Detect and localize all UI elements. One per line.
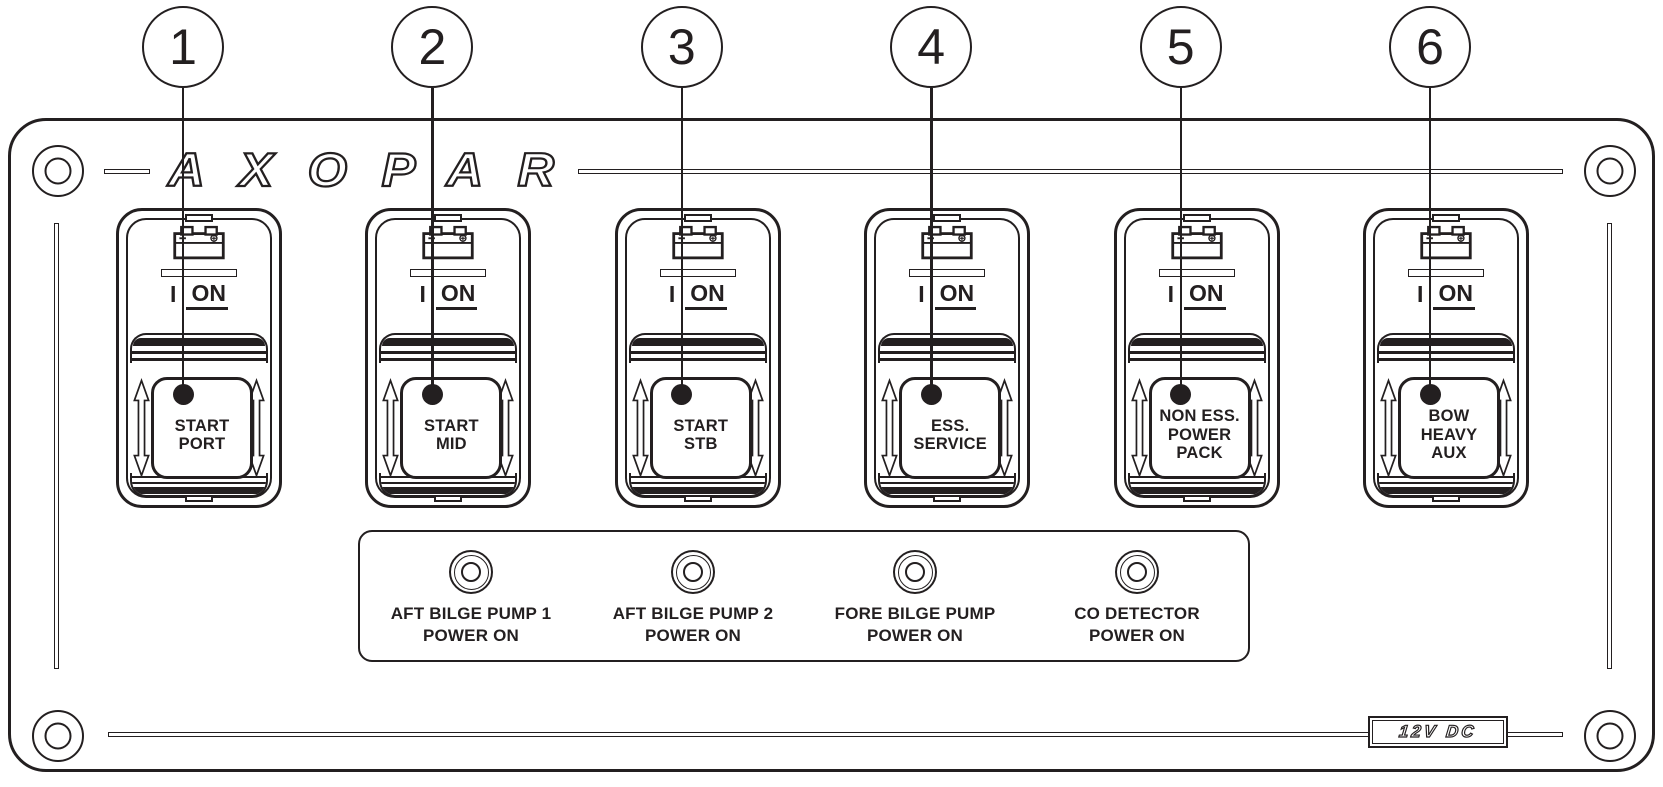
up-down-arrow-icon [631,377,650,479]
indicator-light-label: FORE BILGE PUMP POWER ON [835,603,996,647]
callout-dot [1170,384,1191,405]
led-indicator-icon [671,550,715,594]
indicator-light-panel: AFT BILGE PUMP 1 POWER ON AFT BILGE PUMP… [358,530,1250,662]
position-indicator: I [1417,281,1423,310]
switch-label: NON ESS. POWER PACK [1149,377,1251,479]
callout-leader-line [681,88,683,395]
switch-window [909,269,985,277]
switch-label: START PORT [151,377,253,479]
bezel-tab [434,214,462,222]
bezel-tab [1183,214,1211,222]
up-down-arrow-icon [1379,377,1398,479]
rocker-top-stripes [130,333,268,363]
callout-leader-line [1429,88,1431,395]
on-label: ON [935,281,977,310]
battery-icon [1169,223,1225,261]
led-indicator-icon [1115,550,1159,594]
switch-window [1159,269,1235,277]
callout-number: 5 [1140,6,1222,88]
indicator-light-label: CO DETECTOR POWER ON [1074,603,1200,647]
callout-number: 4 [890,6,972,88]
position-indicator: I [170,281,176,310]
voltage-badge-label: 12V DC [1398,722,1478,742]
on-label: ON [685,281,727,310]
switch-window [1408,269,1484,277]
up-down-arrow-icon [132,377,151,479]
callout-leader-line [431,88,433,395]
battery-icon [1418,223,1474,261]
on-position-label: I ON [1117,281,1277,310]
switch-label: ESS. SERVICE [899,377,1001,479]
callout-dot [422,384,443,405]
rocker-switch: I ON BOW HEAVY AUX [1363,208,1529,508]
on-position-label: I ON [867,281,1027,310]
switch-label: BOW HEAVY AUX [1398,377,1500,479]
voltage-badge: 12V DC [1368,716,1508,748]
logo-dash-line [104,169,150,174]
rocker-top-stripes [379,333,517,363]
on-position-label: I ON [1366,281,1526,310]
screw-hole-icon [32,710,84,762]
callout-number: 1 [142,6,224,88]
switch-label: START MID [400,377,502,479]
switch-window [161,269,237,277]
indicator-light: AFT BILGE PUMP 1 POWER ON [360,532,582,660]
callout-dot [173,384,194,405]
indicator-light-label: AFT BILGE PUMP 1 POWER ON [391,603,552,647]
callout-dot [921,384,942,405]
bezel-tab [1432,214,1460,222]
callout-number: 6 [1389,6,1471,88]
rocker-switch: I ON ESS. SERVICE [864,208,1030,508]
indicator-light-label: AFT BILGE PUMP 2 POWER ON [613,603,774,647]
decorative-side-line [1607,223,1612,669]
battery-icon [171,223,227,261]
switch-window [660,269,736,277]
bottom-rule-line [108,732,1563,737]
callout-leader-line [930,88,932,395]
position-indicator: I [669,281,675,310]
screw-hole-icon [1584,710,1636,762]
on-label: ON [436,281,478,310]
indicator-light: CO DETECTOR POWER ON [1026,532,1248,660]
top-rule-line [578,169,1563,174]
battery-icon [420,223,476,261]
indicator-light: AFT BILGE PUMP 2 POWER ON [582,532,804,660]
switch-label: START STB [650,377,752,479]
callout-leader-line [1180,88,1182,395]
battery-icon [919,223,975,261]
switch-window [410,269,486,277]
rocker-top-stripes [1377,333,1515,363]
up-down-arrow-icon [880,377,899,479]
decorative-side-line [54,223,59,669]
battery-icon [670,223,726,261]
position-indicator: I [1168,281,1174,310]
switch-panel-diagram: AXOPAR AFT BILGE PUMP 1 POWER ON AFT BIL… [0,0,1663,787]
indicator-light: FORE BILGE PUMP POWER ON [804,532,1026,660]
rocker-switch: I ON START STB [615,208,781,508]
callout-leader-line [182,88,184,395]
bezel-tab [684,214,712,222]
on-position-label: I ON [119,281,279,310]
bezel-tab [185,214,213,222]
on-position-label: I ON [368,281,528,310]
position-indicator: I [918,281,924,310]
on-position-label: I ON [618,281,778,310]
led-indicator-icon [893,550,937,594]
on-label: ON [1184,281,1226,310]
position-indicator: I [419,281,425,310]
screw-hole-icon [32,145,84,197]
rocker-switch: I ON START PORT [116,208,282,508]
led-indicator-icon [449,550,493,594]
screw-hole-icon [1584,145,1636,197]
callout-dot [1420,384,1441,405]
rocker-top-stripes [1128,333,1266,363]
on-label: ON [1433,281,1475,310]
brand-logo: AXOPAR [168,142,589,197]
bezel-tab [933,214,961,222]
up-down-arrow-icon [1130,377,1149,479]
rocker-switch: I ON START MID [365,208,531,508]
on-label: ON [186,281,228,310]
rocker-switch: I ON NON ESS. POWER PACK [1114,208,1280,508]
rocker-top-stripes [878,333,1016,363]
callout-number: 2 [391,6,473,88]
callout-number: 3 [641,6,723,88]
rocker-top-stripes [629,333,767,363]
up-down-arrow-icon [381,377,400,479]
